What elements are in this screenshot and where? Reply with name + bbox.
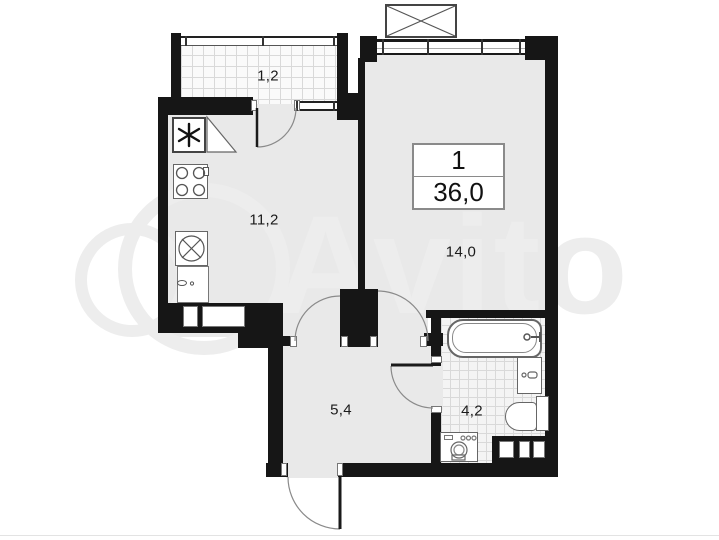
kitchen-area-label: 11,2 [249,212,278,229]
door-jamb [281,463,287,476]
toilet-tank [536,396,549,431]
toilet-bowl [505,402,537,431]
vent-shaft [183,306,198,327]
wall [158,97,253,115]
window-mullion [481,39,483,55]
kitchen-balcony-window [295,101,337,111]
bathroom-area-label: 4,2 [461,403,483,420]
entrance-gap-floor [286,461,340,478]
window-mullion [296,101,298,111]
wall [171,33,181,106]
window-mullion [333,101,335,111]
wall [426,310,558,318]
bathroom-door-gap [431,362,443,410]
entrance-door-arc [288,477,340,529]
window-mullion [382,39,384,55]
door-jamb [420,336,427,347]
balcony-area-label: 1,2 [257,68,279,85]
bathtub-inner [452,323,537,353]
wall [158,97,168,333]
apartment-info-box: 1 36,0 [412,143,505,210]
hallway-floor [283,333,433,465]
vent-box [172,117,206,153]
vent-shaft [499,441,514,458]
door-jamb [431,406,442,413]
vent-shaft [202,306,245,327]
glazing-mullion [185,36,187,46]
window-mullion [519,39,521,55]
vent-shaft [519,441,530,458]
glazing-mullion [333,36,335,46]
wall [338,463,558,477]
window-mullion [427,39,429,55]
total-area: 36,0 [414,177,503,208]
kitchen-cabinet [177,266,209,303]
wall [268,331,283,477]
page-bottom-edge [0,535,719,536]
vent-shaft [533,441,545,458]
kitchen-sink [175,231,208,266]
wall [358,58,365,292]
door-jamb [431,356,442,363]
glazing-mullion [262,36,264,46]
ac-unit-box [385,4,457,38]
window-sill-line [377,48,525,49]
wash-basin [517,357,542,394]
door-jamb [251,100,257,111]
door-jamb [370,336,377,347]
floor-plan: Avito [0,0,719,540]
door-jamb [290,336,297,347]
door-jamb [337,463,343,476]
living-room-window [377,39,525,55]
stove-handle [203,167,209,176]
balcony-glazing [181,36,337,46]
rooms-count: 1 [414,145,503,177]
washing-machine-panel [444,435,453,440]
wall [525,36,558,60]
hallway-area-label: 5,4 [330,402,352,419]
living-room-area-label: 14,0 [446,244,476,261]
door-jamb [341,336,348,347]
